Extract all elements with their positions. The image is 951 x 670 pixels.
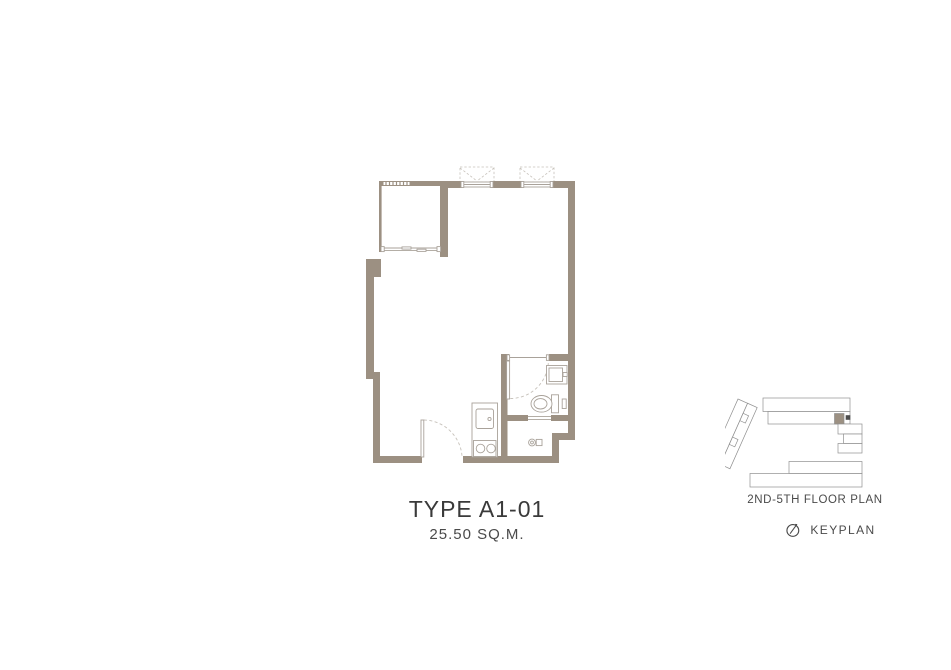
- ac-condenser-ledge-1-icon: [460, 167, 494, 182]
- unit-type-title: TYPE A1-01: [377, 496, 577, 522]
- compass-north-icon: [784, 520, 803, 539]
- keyplan-highlighted-unit: [835, 414, 845, 425]
- keyplan-core-marker: [846, 415, 851, 420]
- two-burner-stove-icon: [474, 441, 497, 457]
- louver-vent-icon: [384, 182, 410, 185]
- window-2-icon: [521, 182, 553, 188]
- entrance-door-icon: [421, 420, 462, 457]
- keyplan-floor-label: 2ND-5TH FLOOR PLAN: [730, 494, 900, 506]
- unit-walls: [366, 181, 575, 463]
- title-block: TYPE A1-01 25.50 SQ.M.: [377, 496, 577, 543]
- unit-area-label: 25.50 SQ.M.: [377, 526, 577, 543]
- keyplan-building-map: [725, 390, 885, 495]
- keyplan-bottom-wing: [750, 462, 862, 488]
- keyplan-label: KEYPLAN: [810, 523, 875, 537]
- keyplan-left-wing: [725, 399, 757, 474]
- bathroom-sink-icon: [547, 366, 568, 385]
- keyplan-right-leg: [838, 424, 862, 453]
- keyplan-caption: KEYPLAN: [745, 520, 915, 539]
- floorplan-page: TYPE A1-01 25.50 SQ.M.: [0, 0, 951, 670]
- sliding-door-icon: [381, 247, 441, 252]
- ac-condenser-ledge-2-icon: [520, 167, 554, 182]
- kitchen-sink-icon: [476, 409, 494, 429]
- washer-tap-icon: [529, 439, 542, 446]
- toilet-icon: [531, 395, 566, 413]
- window-1-icon: [461, 182, 493, 188]
- unit-floorplan-drawing: [350, 150, 590, 480]
- bathroom-threshold: [528, 417, 551, 420]
- bathroom-door-icon: [507, 355, 549, 399]
